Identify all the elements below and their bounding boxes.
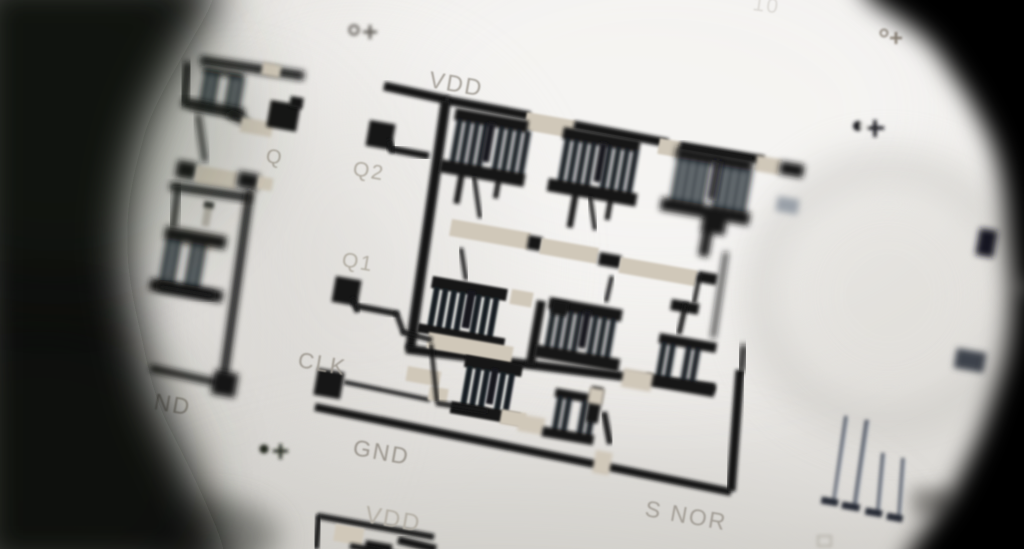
svg-text:Q: Q [264,145,285,170]
